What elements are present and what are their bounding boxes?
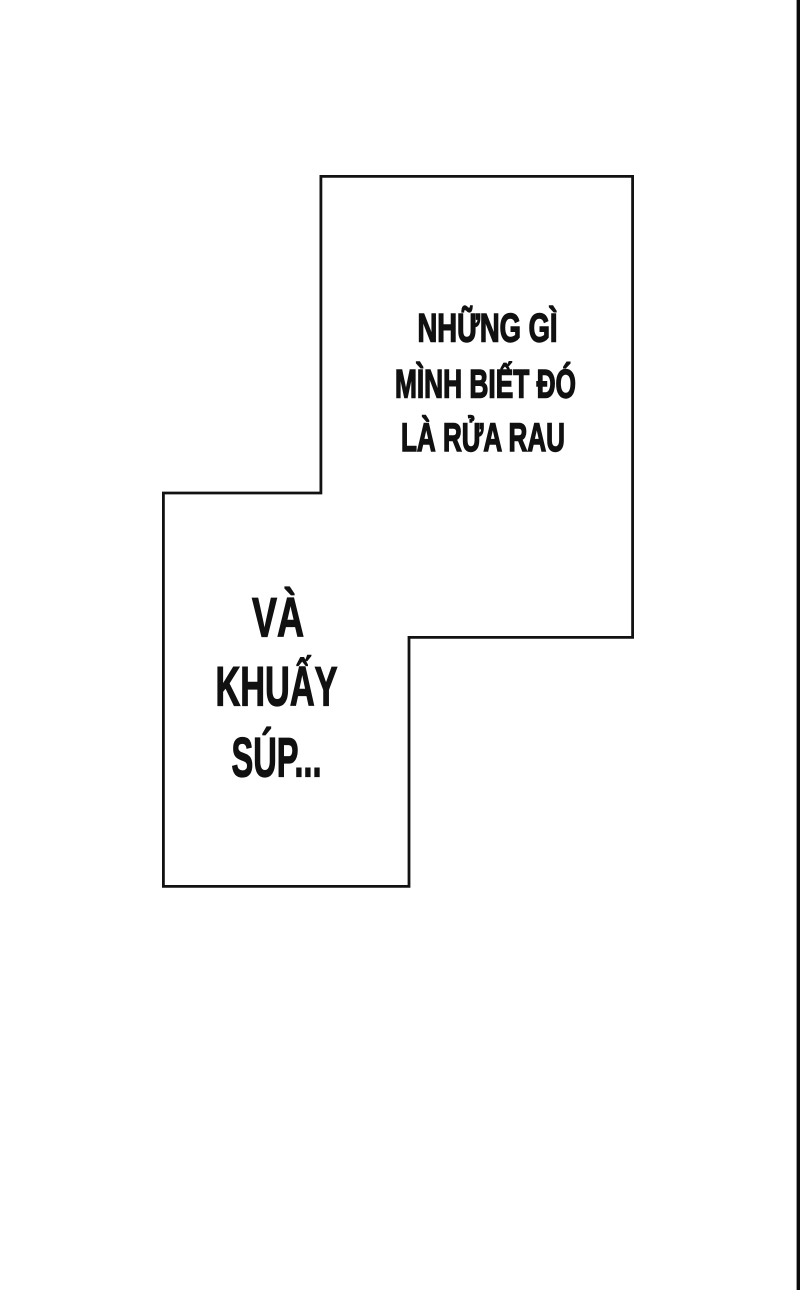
svg-text:MÌNH BIẾT ĐÓ: MÌNH BIẾT ĐÓ [395,361,576,407]
svg-text:SÚP...: SÚP... [232,726,322,789]
svg-text:NHỮNG GÌ: NHỮNG GÌ [418,305,558,351]
svg-text:KHUẤY: KHUẤY [216,655,338,718]
svg-text:VÀ: VÀ [252,586,304,649]
svg-text:LÀ RỬA RAU: LÀ RỬA RAU [401,414,565,460]
